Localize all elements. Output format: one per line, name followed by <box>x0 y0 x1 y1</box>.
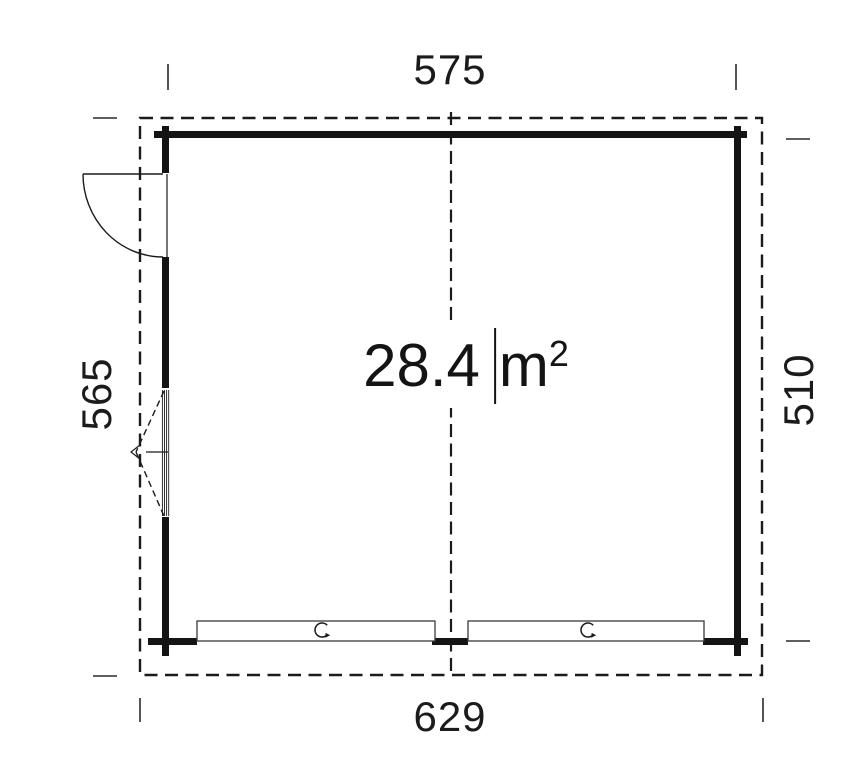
dim-label-bottom: 629 <box>413 696 486 738</box>
wall-bottom-right-segment <box>703 638 748 645</box>
dim-label-right: 510 <box>778 353 820 426</box>
area-value: 28.4 <box>363 336 480 396</box>
door-swing-arc <box>83 174 163 257</box>
dim-label-top: 575 <box>413 49 486 91</box>
area-unit-base: m <box>499 332 549 399</box>
area-unit: m2 <box>499 336 569 396</box>
wall-left-lower <box>162 517 169 656</box>
area-unit-exponent: 2 <box>549 333 569 374</box>
area-label: 28.4 m2 <box>357 324 575 408</box>
wall-left-middle <box>162 257 169 388</box>
wall-bottom-left-segment <box>148 638 197 645</box>
area-centerline-mark <box>494 328 496 404</box>
wall-bottom-center-segment <box>432 638 468 645</box>
entry-door <box>83 174 167 257</box>
wall-left-upper <box>162 126 169 173</box>
wall-top <box>154 131 747 138</box>
floor-plan-canvas: 575 629 565 510 28.4 m2 <box>0 0 842 777</box>
wall-right <box>734 126 741 656</box>
garage-door-panel-left <box>197 621 435 641</box>
window <box>131 389 170 517</box>
dim-label-left: 565 <box>76 357 118 430</box>
